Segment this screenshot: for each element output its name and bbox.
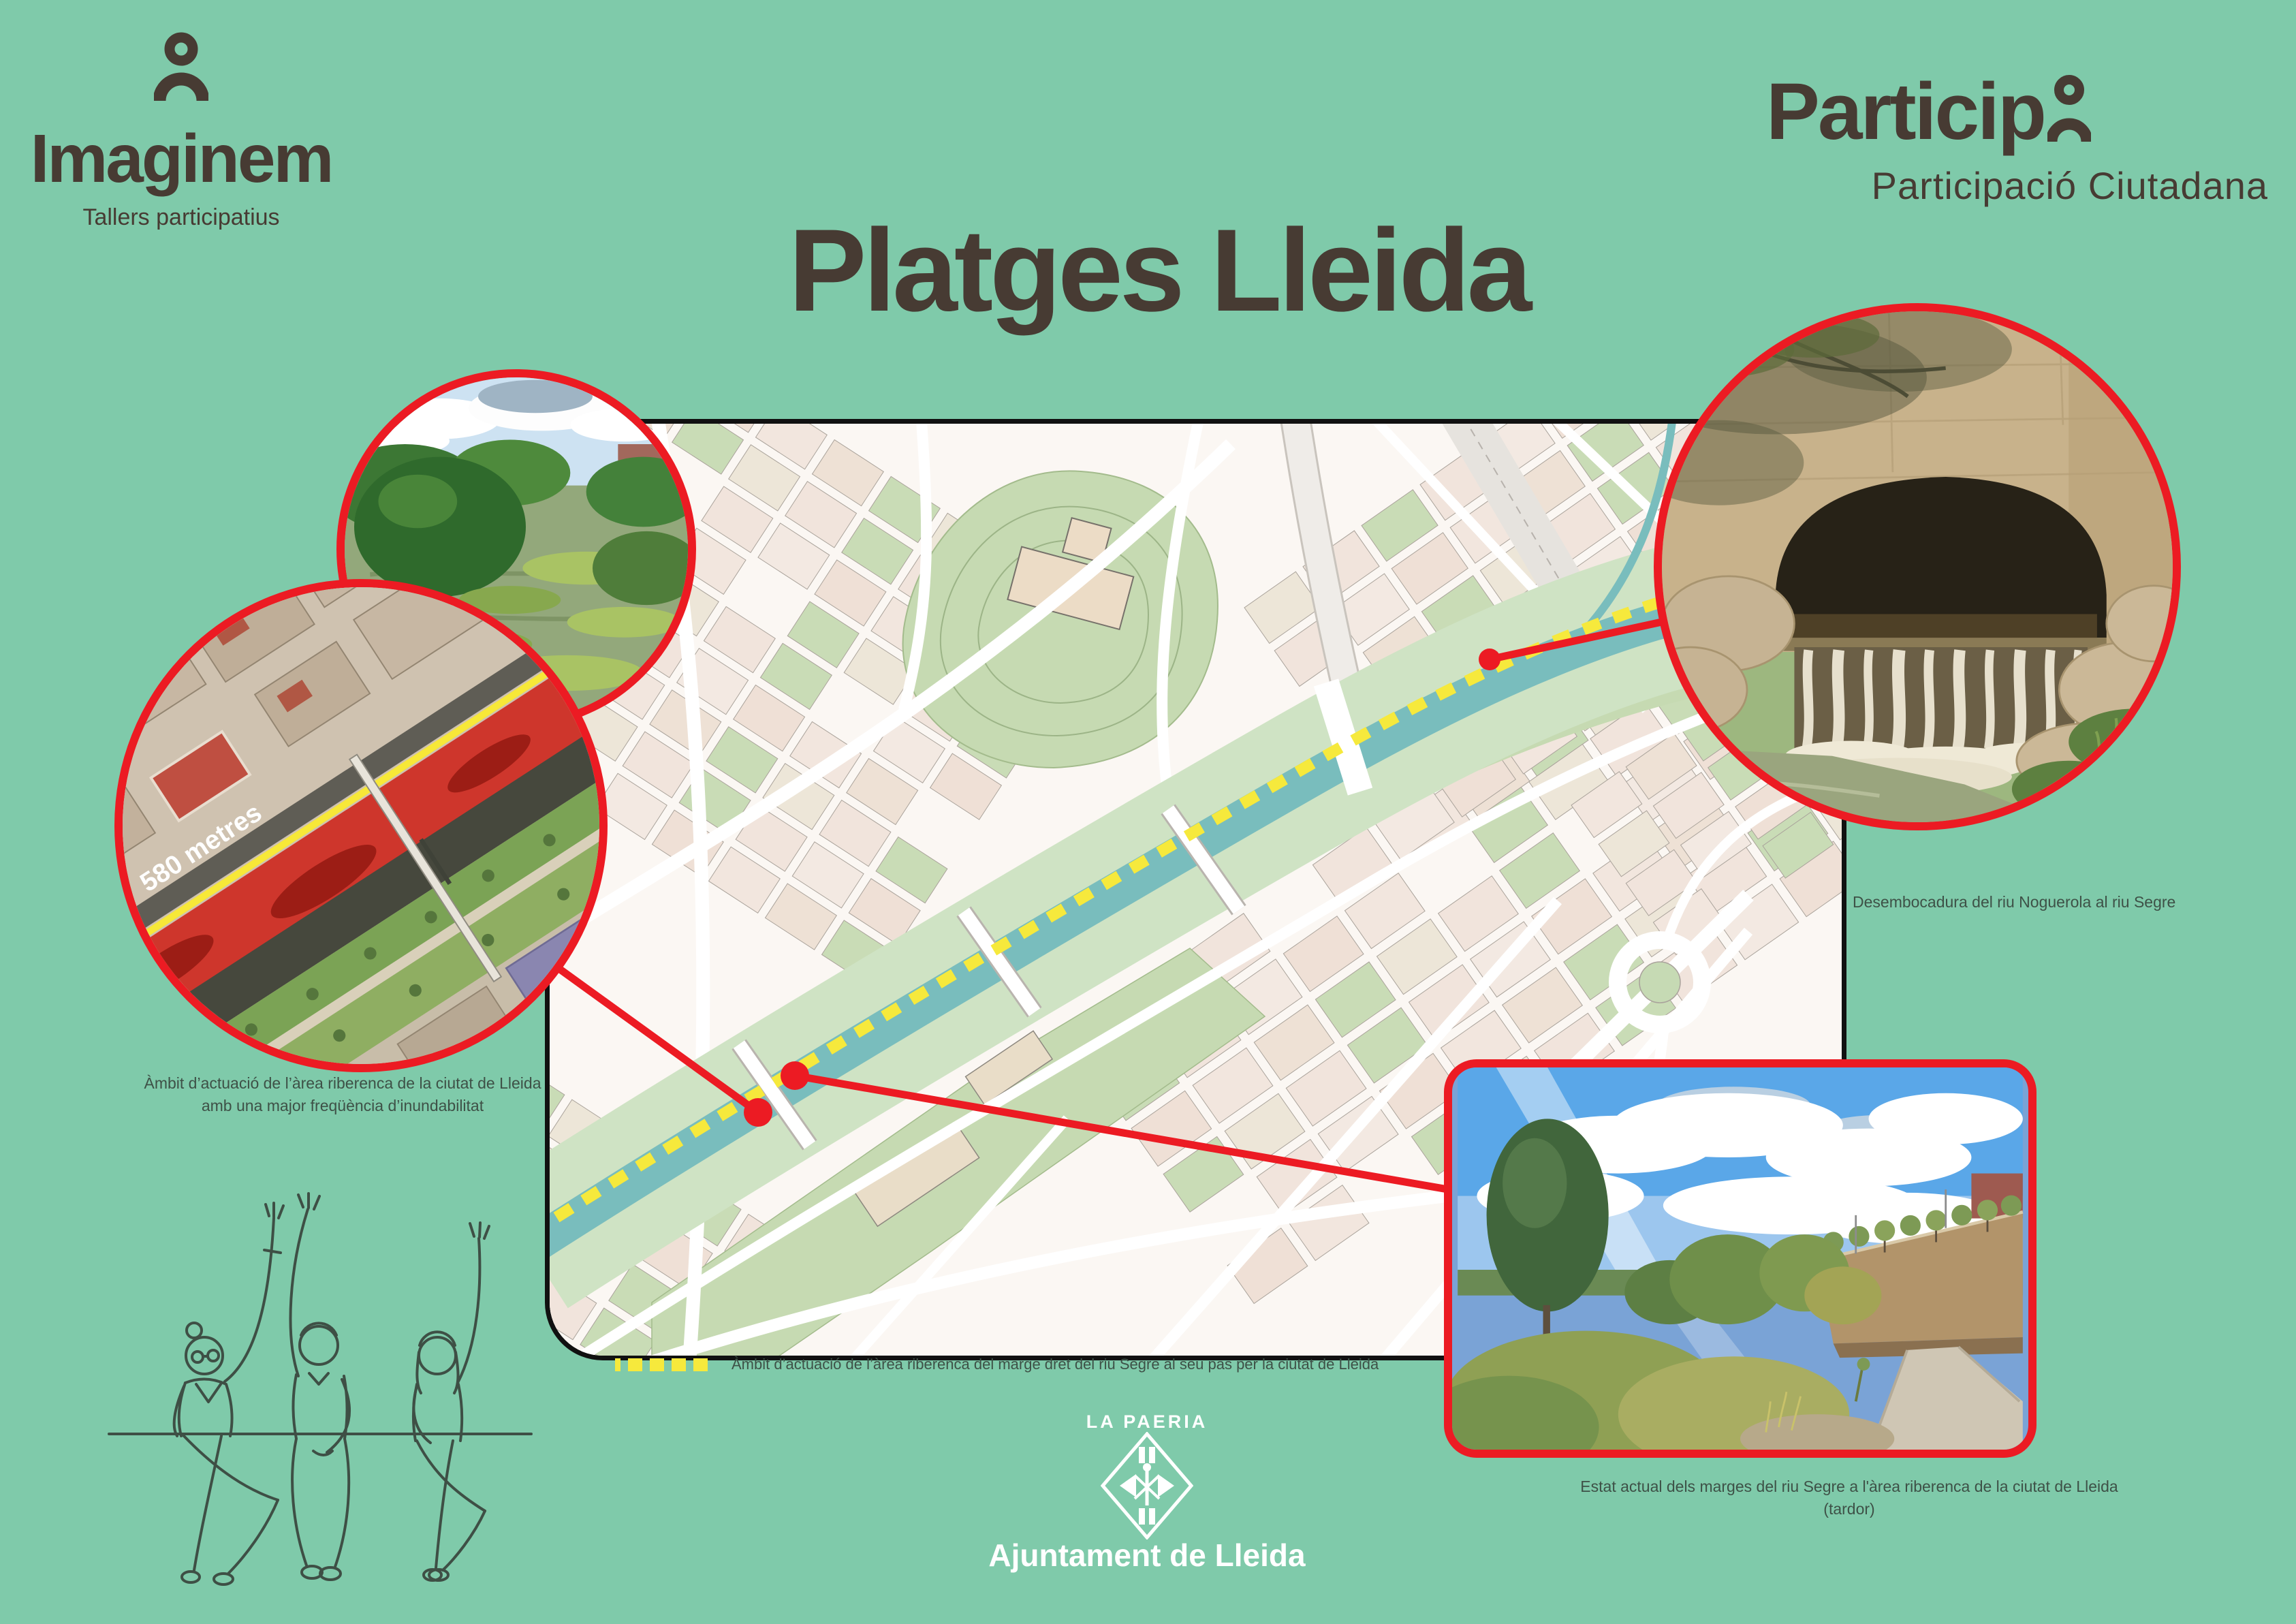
tunnel-photo-drawing [1662,311,2173,822]
ajuntament-name: Ajuntament de Lleida [943,1537,1351,1574]
ajuntament-lleida-coat-of-arms-icon [1101,1432,1193,1540]
legend-dash-icon [615,1358,620,1371]
imaginem-logo-word: Imaginem [0,120,420,198]
caption-autumn-line2: (tardor) [1573,1498,2125,1520]
caption-aerial-line2: amb una major freqüència d’inundabilitat [104,1095,581,1117]
caption-autumn-line1: Estat actual dels marges del riu Segre a… [1573,1475,2125,1498]
caption-autumn: Estat actual dels marges del riu Segre a… [1573,1475,2125,1520]
person-3 [413,1223,489,1580]
inset-aerial-photo: 580 metres [114,579,608,1072]
person-2 [291,1193,350,1580]
caption-tunnel: Desembocadura del riu Noguerola al riu S… [1853,891,2175,913]
la-paeria-label: LA PAERIA [1011,1411,1283,1433]
people-raising-hands-illustration [82,1185,572,1608]
map-legend: Àmbit d’actuació de l’àrea riberenca del… [615,1354,1379,1375]
legend-dash-icon [693,1358,708,1371]
inset-riverside-photo [1444,1059,2036,1458]
legend-label: Àmbit d’actuació de l’àrea riberenca del… [732,1356,1379,1373]
legend-dash-icon [650,1358,664,1371]
page-title: Platges Lleida [682,203,1635,338]
participa-person-icon [2047,71,2091,150]
imaginem-person-icon [154,29,208,109]
participa-logo-word: Particip [1587,65,2045,158]
aerial-photo-drawing: 580 metres [123,587,599,1064]
person-1 [174,1203,283,1584]
poster-platges-lleida: { "brand_left": { "name": "Imaginem", "t… [0,0,2296,1624]
legend-dash-icon [672,1358,686,1371]
inset-tunnel-photo [1654,303,2181,830]
imaginem-tagline: Tallers participatius [0,204,420,231]
caption-aerial-line1: Àmbit d’actuació de l’àrea riberenca de … [104,1072,581,1095]
riverside-photo-drawing [1452,1067,2028,1450]
legend-dash-icon [628,1358,642,1371]
caption-aerial: Àmbit d’actuació de l’àrea riberenca de … [104,1072,581,1116]
participa-subtitle: Participació Ciutadana [1587,163,2268,208]
